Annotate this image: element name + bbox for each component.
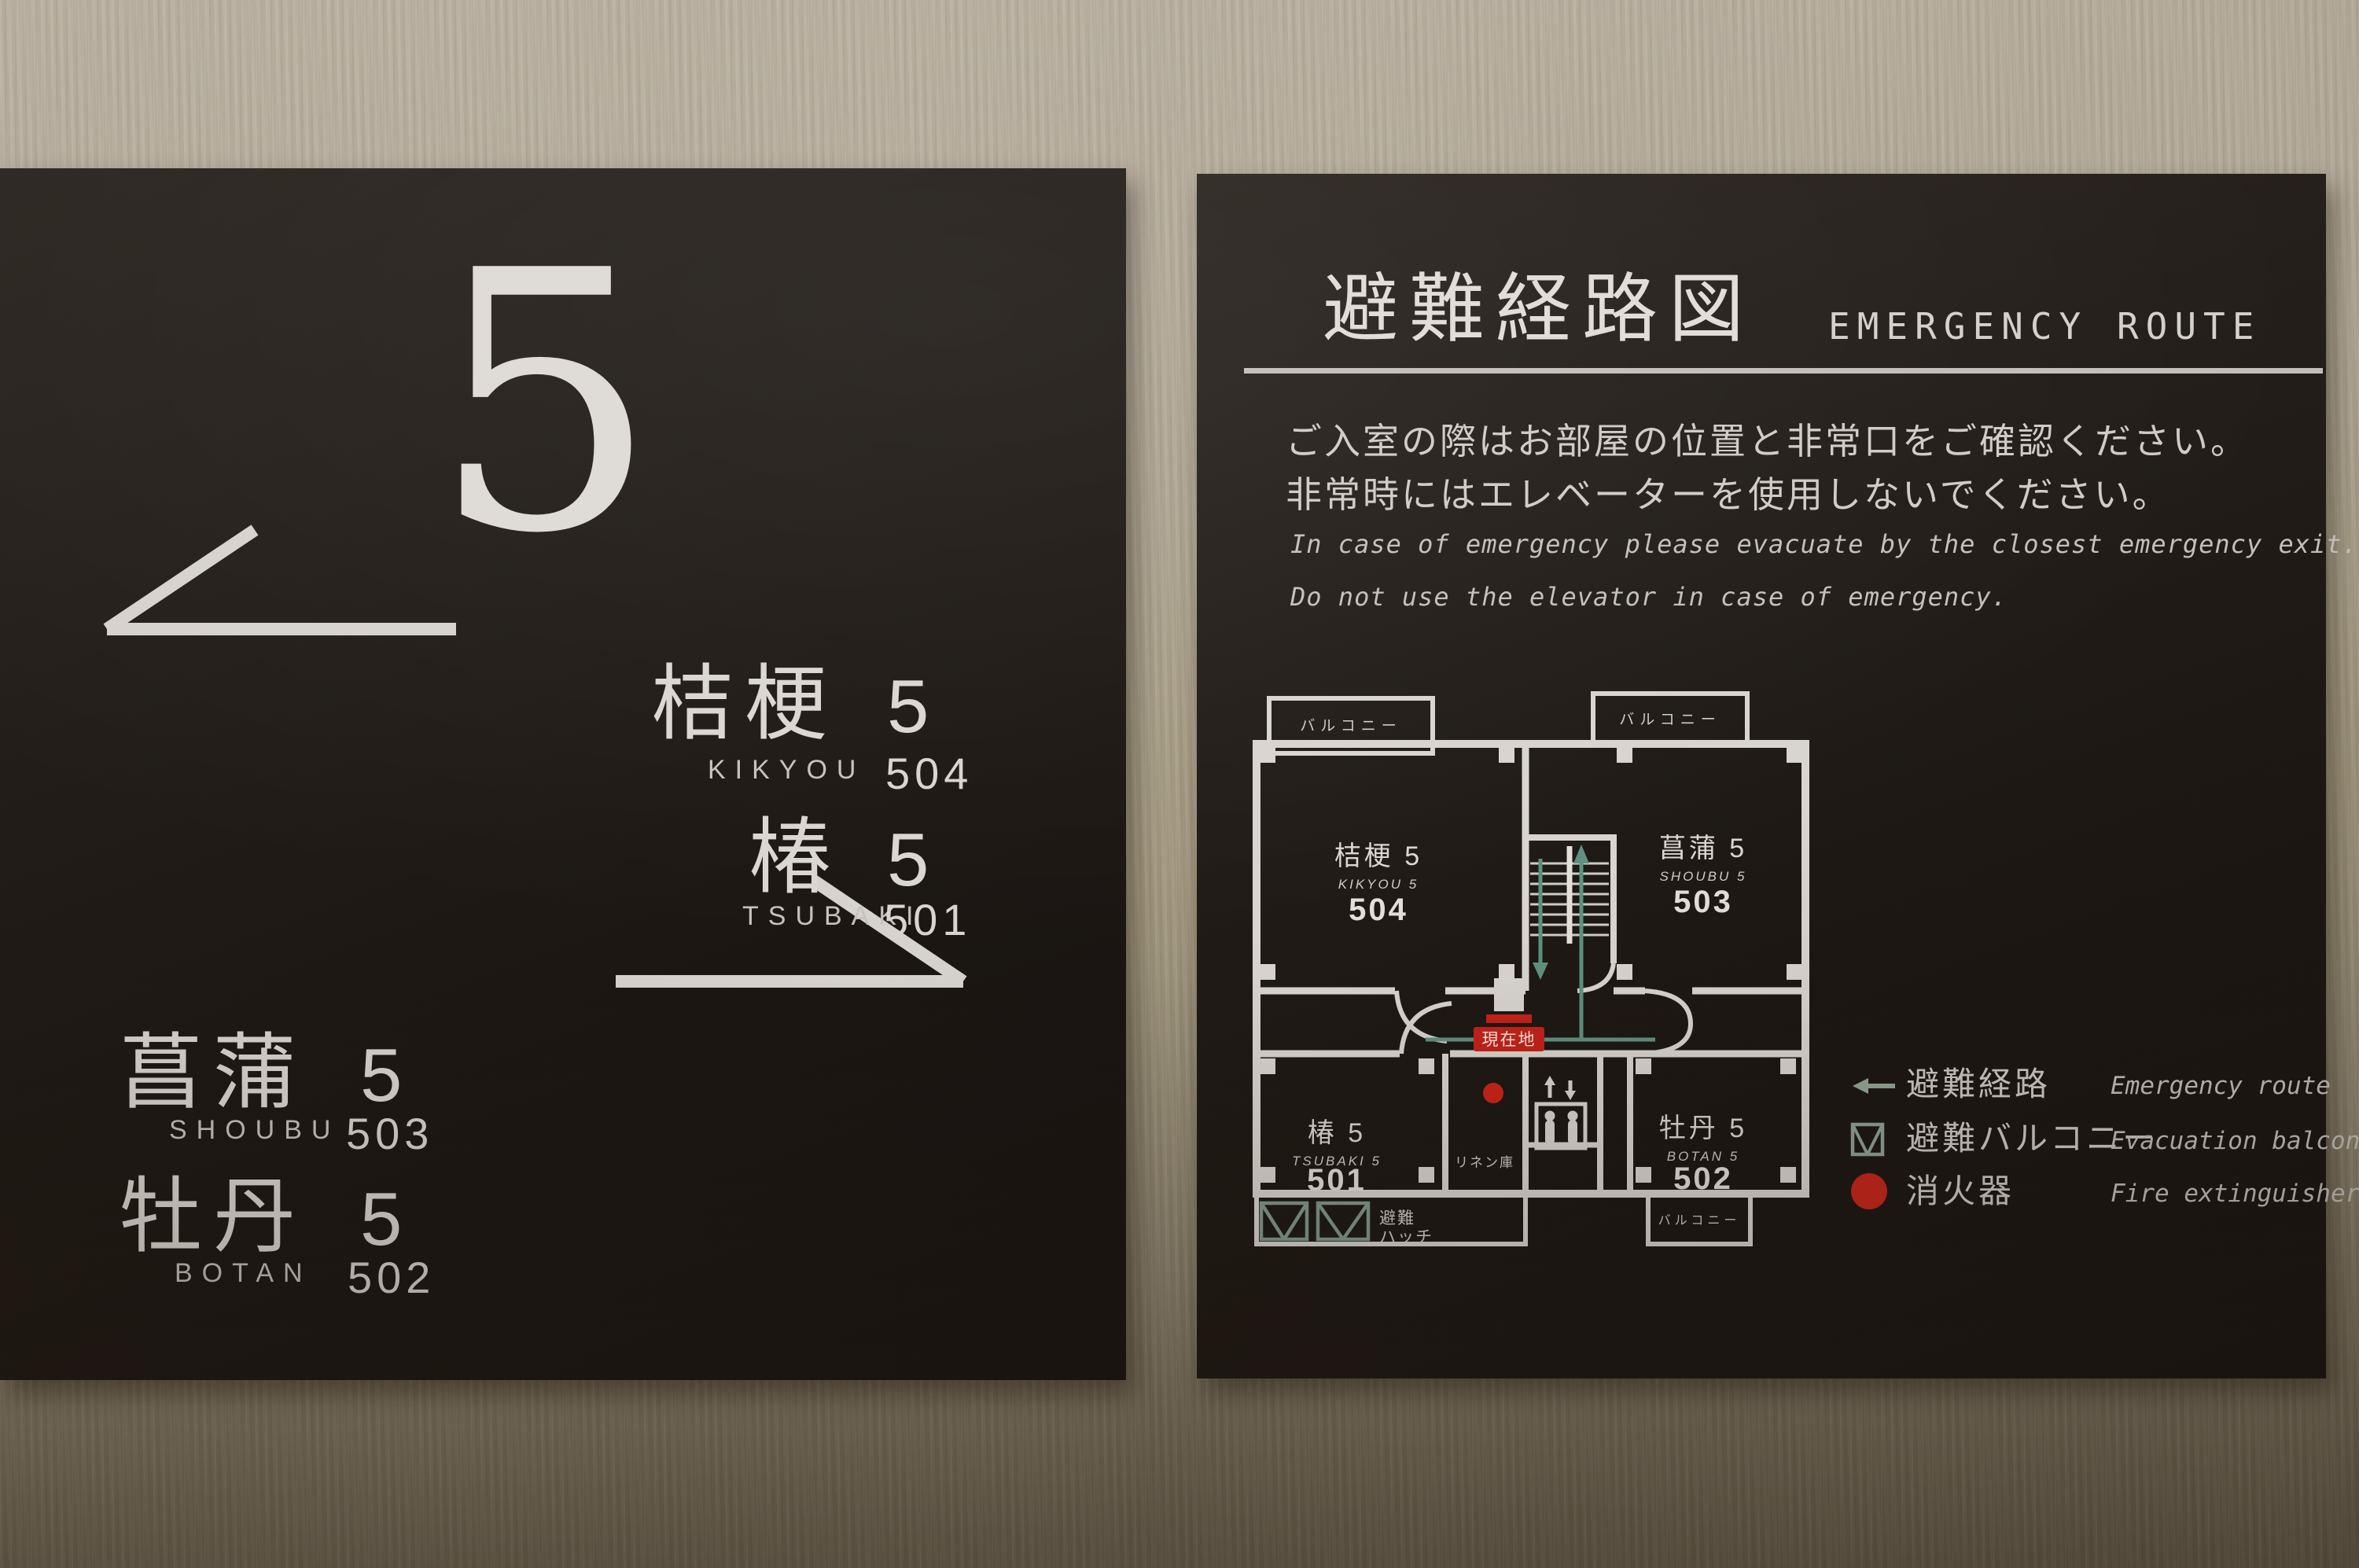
legend-extinguisher-label-en: Fire extinguisher bbox=[2111, 1182, 2359, 1206]
sign-title-english: EMERGENCY ROUTE bbox=[1828, 308, 2261, 344]
plan-room-number-503: 503 bbox=[1673, 885, 1733, 919]
notice-japanese-line1: ご入室の際はお部屋の位置と非常口をご確認ください。 bbox=[1286, 423, 2249, 459]
legend-route-label-jp: 避難経路 bbox=[1906, 1068, 2051, 1101]
plan-room-number-502: 502 bbox=[1673, 1161, 1733, 1196]
hatch-label-line1: 避難 bbox=[1379, 1209, 1415, 1228]
hatch-label-line2: ハッチ bbox=[1379, 1228, 1433, 1246]
room-romaji: SHOUBU bbox=[169, 1117, 340, 1143]
room-floor: 5 bbox=[887, 823, 929, 898]
balcony-label-top-right: バルコニー bbox=[1619, 712, 1721, 728]
room-number: 504 bbox=[885, 752, 973, 796]
linen-room-label: リネン庫 bbox=[1455, 1155, 1514, 1170]
room-romaji: KIKYOU bbox=[708, 756, 865, 783]
room-kanji: 椿 bbox=[749, 816, 842, 899]
notice-english-line2: Do not use the elevator in case of emerg… bbox=[1290, 584, 2008, 609]
evacuation-route-lines bbox=[1426, 845, 1655, 1040]
room-kanji: 牡丹 bbox=[120, 1176, 307, 1258]
room-romaji: BOTAN bbox=[175, 1260, 312, 1286]
legend-balcony-icon bbox=[1849, 1121, 1886, 1158]
plan-room-kanji-502: 牡丹 5 bbox=[1659, 1113, 1747, 1143]
current-location-label: 現在地 bbox=[1482, 1031, 1536, 1049]
sign-title-japanese: 避難経路図 bbox=[1323, 272, 1755, 348]
balcony-label-top-left: バルコニー bbox=[1300, 718, 1402, 734]
legend-route-arrow-icon bbox=[1848, 1074, 1898, 1098]
plan-room-kanji-501: 椿 5 bbox=[1308, 1118, 1366, 1148]
legend-extinguisher-icon bbox=[1851, 1173, 1887, 1209]
notice-english-line1: In case of emergency please evacuate by … bbox=[1290, 532, 2358, 557]
arrow-left-icon bbox=[93, 517, 470, 651]
plan-room-number-501: 501 bbox=[1307, 1163, 1367, 1198]
floor-directory-sign: 5 桔梗 5 KIKYOU 504 椿 5 TSUBAKI 501 菖蒲 5 S… bbox=[0, 168, 1126, 1380]
room-number: 501 bbox=[884, 898, 971, 942]
plan-room-romaji-504: KIKYOU 5 bbox=[1338, 877, 1419, 892]
room-kanji: 桔梗 bbox=[651, 663, 838, 745]
balcony-label-bottom: バルコニー bbox=[1658, 1214, 1741, 1228]
notice-japanese-line2: 非常時にはエレベーターを使用しないでください。 bbox=[1286, 477, 2171, 513]
plan-room-number-504: 504 bbox=[1349, 893, 1408, 927]
room-floor: 5 bbox=[360, 1182, 402, 1257]
fire-extinguisher-dot bbox=[1483, 1083, 1503, 1103]
emergency-route-sign: 避難経路図 EMERGENCY ROUTE ご入室の際はお部屋の位置と非常口をご… bbox=[1197, 174, 2326, 1378]
plan-room-kanji-504: 桔梗 5 bbox=[1334, 841, 1422, 871]
title-divider-rule bbox=[1244, 368, 2323, 374]
room-kanji: 菖蒲 bbox=[120, 1032, 307, 1114]
room-number: 503 bbox=[346, 1112, 433, 1156]
legend-balcony-label-en: Evacuation balcony bbox=[2111, 1129, 2359, 1154]
plan-room-romaji-503: SHOUBU 5 bbox=[1660, 869, 1747, 884]
room-floor: 5 bbox=[887, 669, 929, 745]
elevator-icon bbox=[1536, 1076, 1585, 1148]
legend-extinguisher-label-jp: 消火器 bbox=[1906, 1175, 2015, 1208]
legend-route-label-en: Emergency route bbox=[2111, 1074, 2331, 1099]
plan-room-kanji-503: 菖蒲 5 bbox=[1659, 834, 1747, 863]
room-floor: 5 bbox=[360, 1038, 402, 1113]
evacuation-hatch-icons bbox=[1261, 1203, 1368, 1239]
evacuation-floorplan: 現在地 バルコニー バルコニー バルコニー 桔梗 bbox=[1249, 690, 1834, 1313]
room-number: 502 bbox=[348, 1256, 435, 1300]
